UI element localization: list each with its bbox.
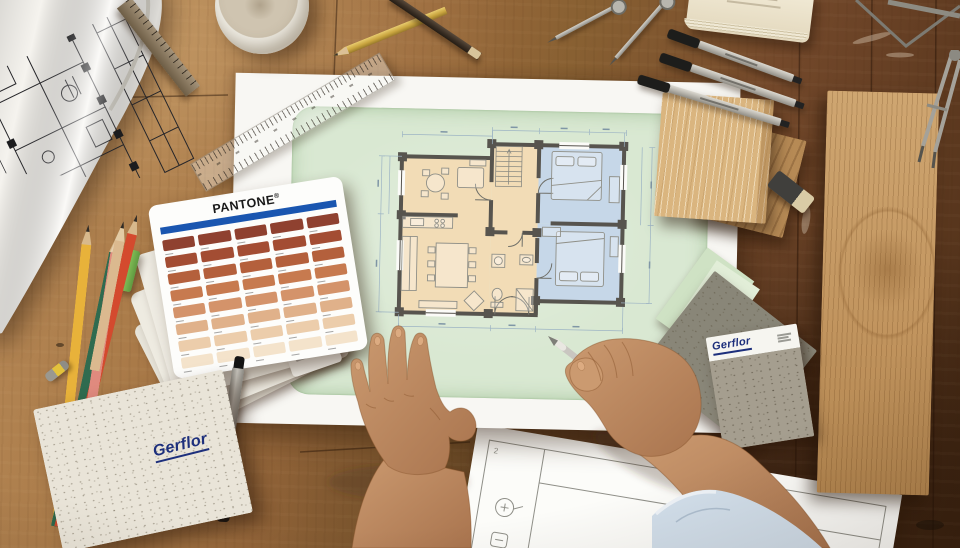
hands-overlay — [0, 0, 960, 548]
left-hand-shape — [351, 326, 476, 475]
architect-desk-scene: 2 — [0, 0, 960, 548]
right-hand-shape — [565, 339, 701, 457]
left-hand — [351, 326, 476, 548]
